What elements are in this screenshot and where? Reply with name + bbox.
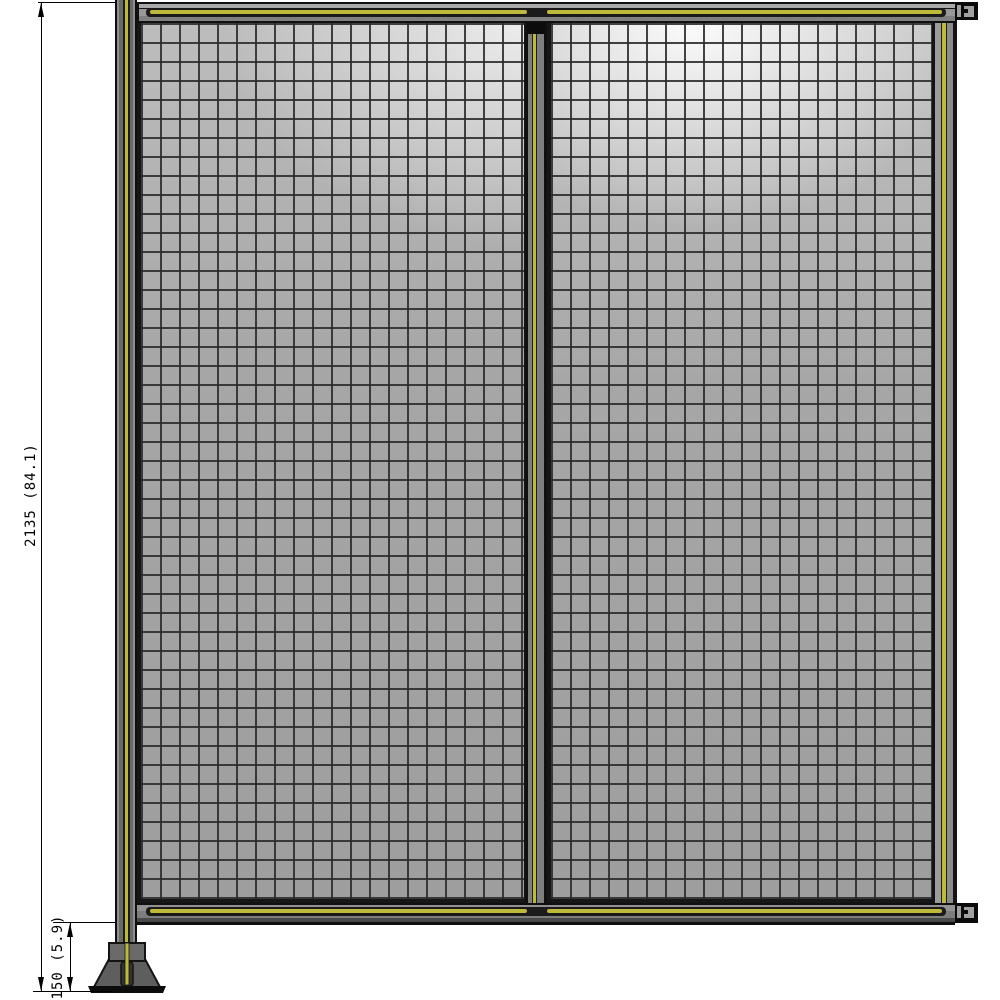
wall-bracket-bottom-tab — [957, 906, 961, 918]
wall-bracket-bottom-hole — [964, 910, 968, 914]
top-rail-stripe-left — [150, 10, 527, 14]
bottom-rail-stripe-left — [150, 909, 527, 913]
dimension-arrow-up-icon — [38, 3, 44, 17]
center-post — [525, 19, 547, 903]
top-rail-stripe-right — [547, 10, 942, 14]
base-height-dimension-label: 150 (5.9) — [50, 907, 66, 1000]
drawing-canvas: 2135 (84.1) 150 (5.9) — [0, 0, 1000, 1000]
dimension-line-overall-height — [41, 2, 42, 991]
upright-post — [115, 0, 137, 945]
dimension-arrow-up-icon — [67, 923, 73, 937]
bottom-rail-stripe-right — [547, 909, 942, 913]
right-end-frame — [932, 20, 957, 905]
base-foot-stripe — [125, 943, 129, 985]
dimension-arrow-down-icon — [38, 977, 44, 991]
wall-bracket-bottom-block — [964, 907, 974, 918]
dimension-arrow-down-icon — [67, 977, 73, 991]
wall-bracket-top-hole — [964, 9, 968, 13]
extension-line-top — [38, 2, 116, 3]
ground-line — [33, 991, 112, 992]
overall-height-dimension-label: 2135 (84.1) — [23, 430, 39, 560]
base-foot — [86, 938, 170, 996]
mesh-panel-left — [137, 19, 528, 903]
wall-bracket-top-tab — [957, 5, 961, 17]
mesh-grid-right — [551, 23, 932, 899]
wall-bracket-bottom — [955, 903, 978, 923]
wall-bracket-top — [955, 2, 978, 20]
wall-bracket-top-block — [964, 6, 974, 17]
mesh-panel-right — [547, 19, 936, 903]
mesh-grid-left — [141, 23, 524, 899]
